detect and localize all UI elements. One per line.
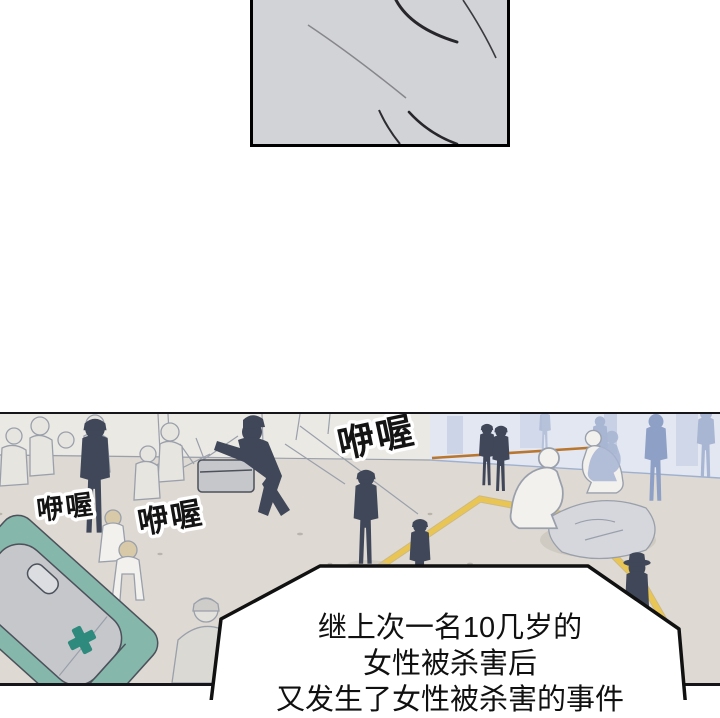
doorway (447, 416, 463, 454)
webtoon-page: 咿喔 咿喔 咿喔 继上次一名10几岁的 女性被杀害后 又发生了女性被杀害的事件 (0, 0, 720, 700)
doorway (676, 414, 698, 466)
dumpster (198, 460, 254, 492)
narration-line-2: 女性被杀害后 (230, 646, 670, 682)
narration-bubble: 继上次一名10几岁的 女性被杀害后 又发生了女性被杀害的事件 (200, 558, 700, 700)
narration-text: 继上次一名10几岁的 女性被杀害后 又发生了女性被杀害的事件 (230, 610, 670, 718)
sketch-lines-art (253, 0, 507, 144)
covered-body-sheet (549, 501, 655, 559)
doorway (520, 414, 542, 448)
narration-line-1: 继上次一名10几岁的 (230, 610, 670, 646)
top-sketch-panel (250, 0, 510, 147)
narration-line-3: 又发生了女性被杀害的事件 (230, 682, 670, 718)
